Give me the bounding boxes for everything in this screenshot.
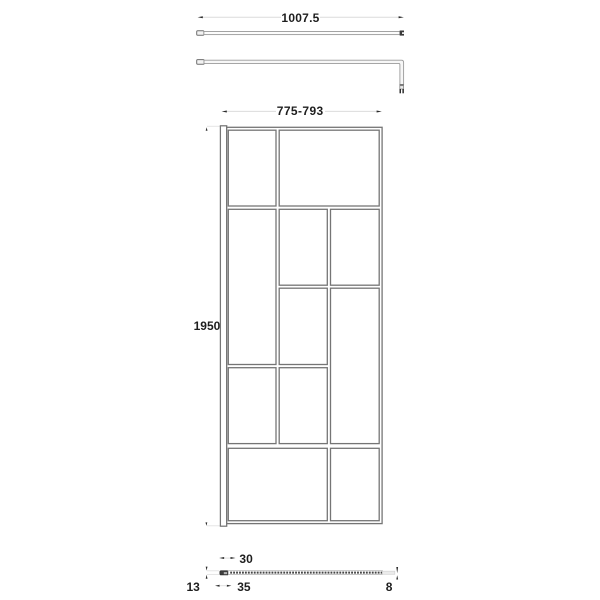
- svg-text:1007.5: 1007.5: [281, 11, 319, 25]
- svg-text:30: 30: [239, 552, 253, 566]
- svg-text:775-793: 775-793: [277, 104, 324, 118]
- svg-text:13: 13: [187, 580, 201, 594]
- svg-text:35: 35: [237, 580, 251, 594]
- svg-text:1950: 1950: [194, 319, 221, 333]
- svg-text:8: 8: [386, 580, 393, 594]
